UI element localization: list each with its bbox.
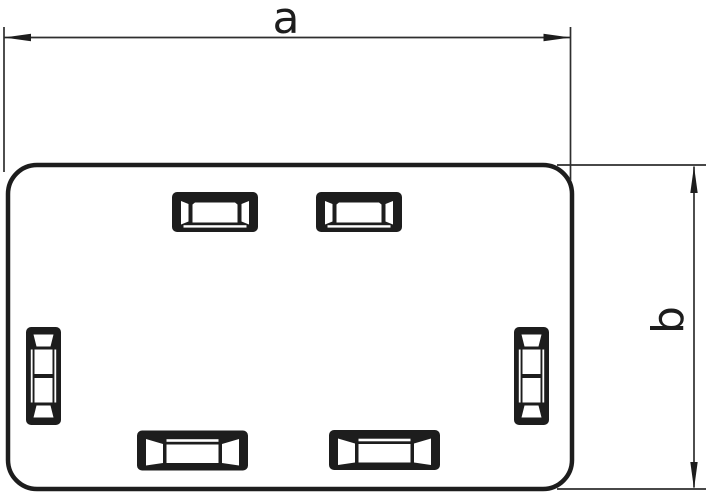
- dimension-a-arrowhead-left-icon: [4, 34, 31, 41]
- latch-slot-top-1: [172, 192, 258, 232]
- latch-slot-bottom-2: [329, 430, 440, 470]
- drawing-canvas: a b: [0, 0, 708, 496]
- technical-drawing-page: a b: [0, 0, 708, 496]
- dimension-a-arrowhead-right-icon: [544, 34, 571, 41]
- latch-slot-top-2: [316, 192, 402, 232]
- dimension-b-label: b: [643, 306, 694, 334]
- latch-slot-left: [26, 327, 61, 425]
- dimension-b-arrowhead-bottom-icon: [690, 462, 697, 489]
- latch-slot-right: [514, 327, 549, 425]
- latch-slot-bottom-1: [137, 431, 248, 471]
- dimension-a-label: a: [273, 0, 300, 44]
- part-body-outline: [8, 165, 572, 489]
- dimension-a: [4, 27, 571, 180]
- dimension-b-arrowhead-top-icon: [690, 166, 697, 193]
